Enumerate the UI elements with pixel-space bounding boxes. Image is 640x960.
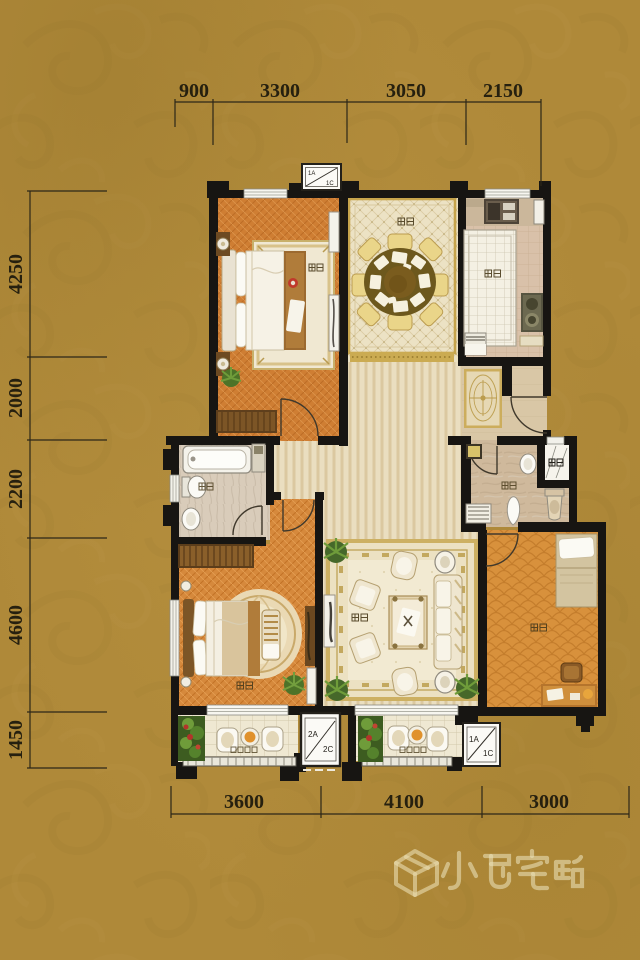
svg-text:2000: 2000: [5, 378, 27, 418]
svg-text:3000: 3000: [529, 791, 569, 813]
svg-text:4600: 4600: [5, 605, 27, 645]
svg-text:3050: 3050: [386, 80, 426, 102]
svg-text:2150: 2150: [483, 80, 523, 102]
svg-text:4100: 4100: [384, 791, 424, 813]
svg-text:1A: 1A: [308, 171, 315, 177]
svg-text:900: 900: [179, 80, 209, 102]
svg-text:3300: 3300: [260, 80, 300, 102]
svg-text:2A: 2A: [308, 730, 318, 739]
svg-text:2C: 2C: [323, 745, 333, 754]
svg-text:4250: 4250: [5, 254, 27, 294]
svg-text:1A: 1A: [469, 735, 479, 744]
svg-text:2200: 2200: [5, 469, 27, 509]
svg-text:1C: 1C: [326, 181, 334, 187]
svg-text:3600: 3600: [224, 791, 264, 813]
svg-text:1450: 1450: [5, 720, 27, 760]
svg-text:1C: 1C: [483, 749, 493, 758]
